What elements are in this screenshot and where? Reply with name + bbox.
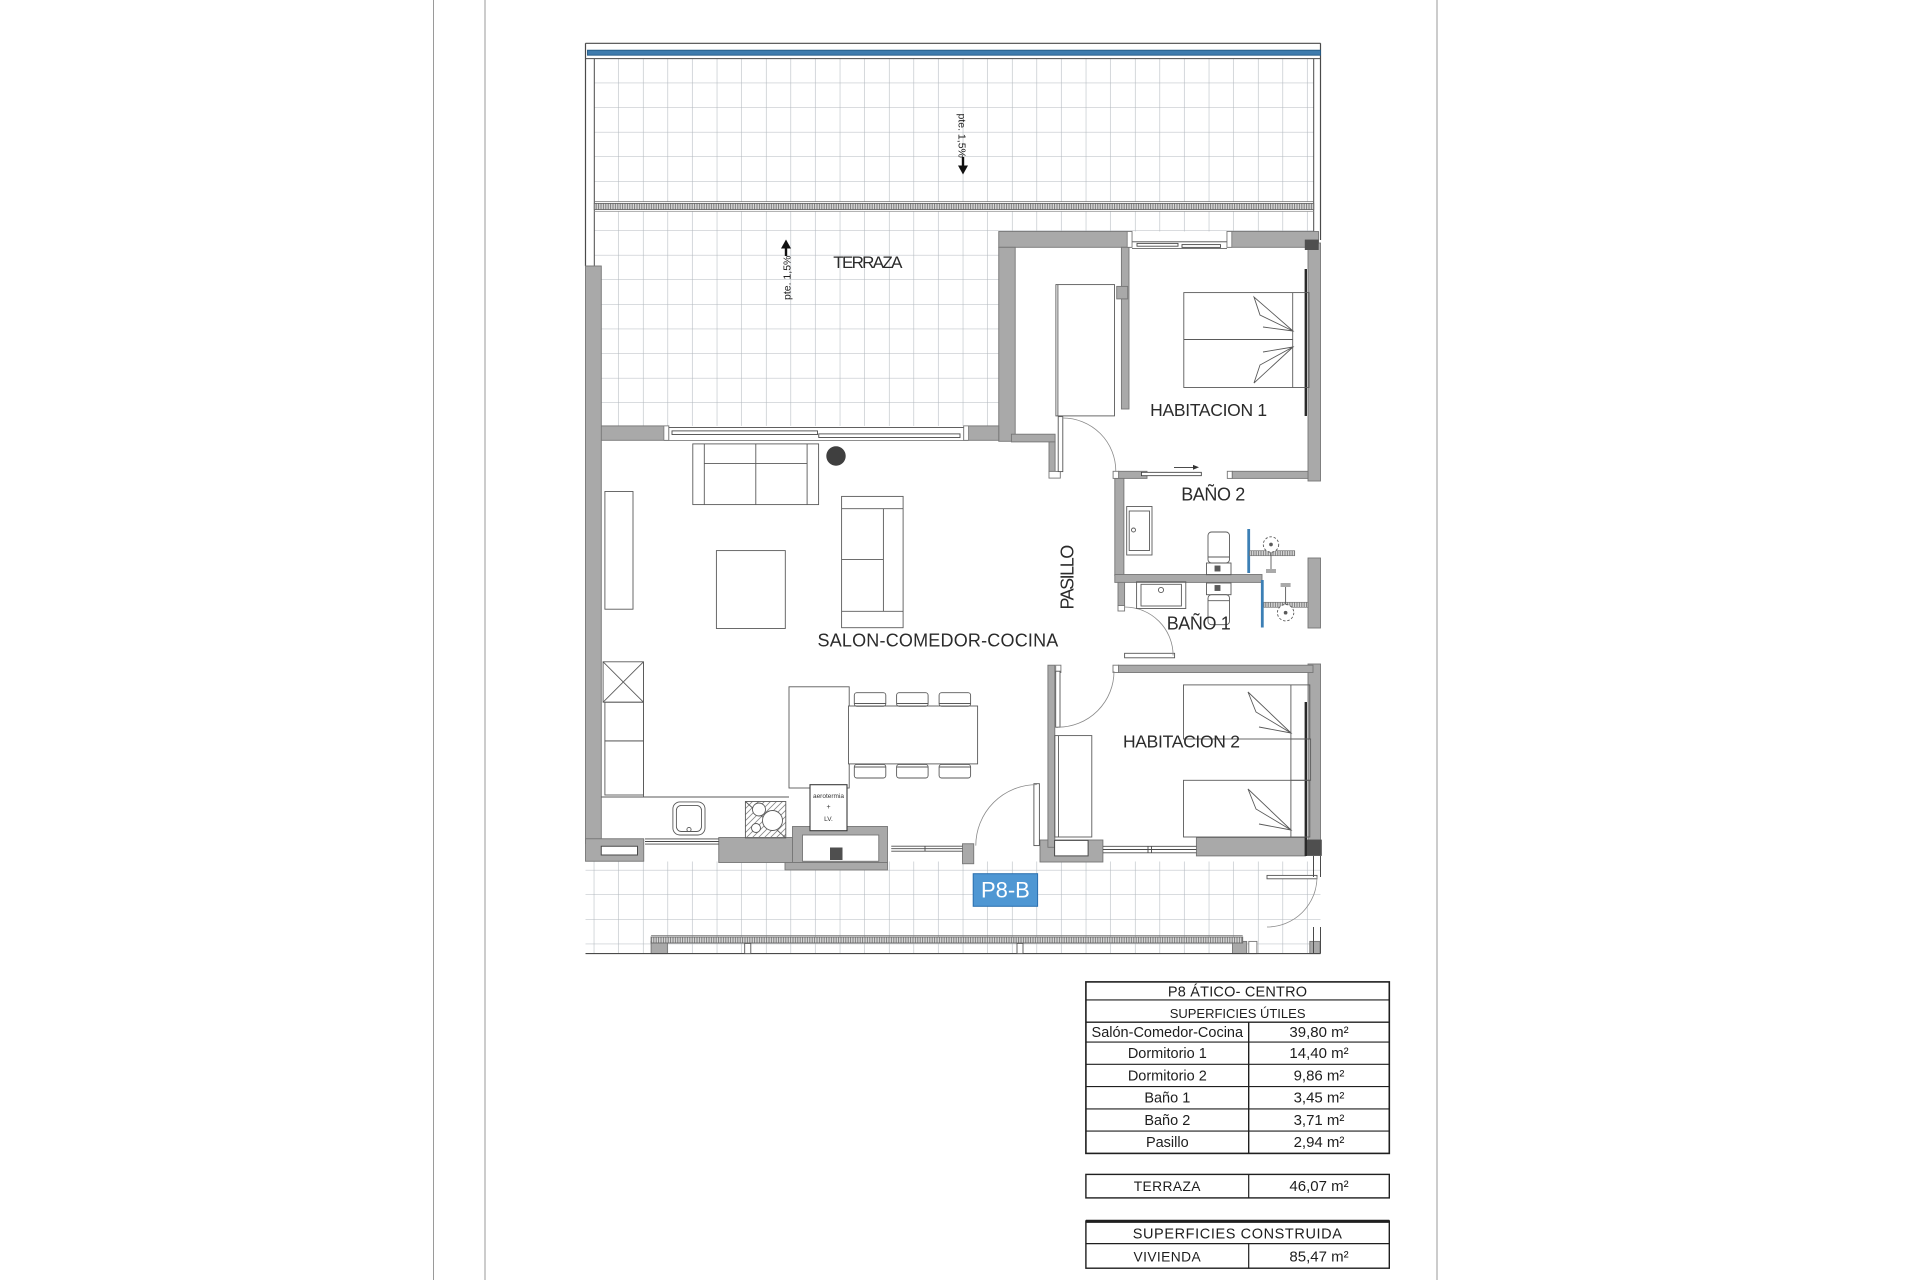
svg-text:BAÑO 2: BAÑO 2 (1181, 484, 1245, 505)
svg-text:Dormitorio 2: Dormitorio 2 (1128, 1068, 1207, 1084)
svg-text:Baño 2: Baño 2 (1144, 1113, 1190, 1129)
svg-text:pte. 1,5%: pte. 1,5% (956, 114, 968, 158)
svg-text:P8-B: P8-B (981, 878, 1030, 903)
svg-text:BAÑO 1: BAÑO 1 (1167, 613, 1231, 634)
svg-text:9,86 m²: 9,86 m² (1294, 1067, 1345, 1084)
svg-text:TERRAZA: TERRAZA (1134, 1179, 1202, 1194)
svg-text:HABITACION 1: HABITACION 1 (1150, 400, 1267, 420)
svg-text:3,71 m²: 3,71 m² (1294, 1112, 1345, 1129)
svg-text:14,40 m²: 14,40 m² (1289, 1045, 1348, 1062)
svg-text:HABITACION 2: HABITACION 2 (1123, 732, 1240, 752)
svg-text:+: + (826, 804, 830, 811)
svg-text:Salón-Comedor-Cocina: Salón-Comedor-Cocina (1092, 1025, 1244, 1041)
svg-text:SALON-COMEDOR-COCINA: SALON-COMEDOR-COCINA (817, 631, 1058, 651)
svg-text:PASILLO: PASILLO (1058, 545, 1078, 610)
svg-text:85,47 m²: 85,47 m² (1289, 1248, 1348, 1265)
svg-text:2,94 m²: 2,94 m² (1294, 1134, 1345, 1151)
svg-text:Dormitorio 1: Dormitorio 1 (1128, 1046, 1207, 1062)
svg-text:46,07 m²: 46,07 m² (1289, 1178, 1348, 1195)
svg-text:VIVIENDA: VIVIENDA (1133, 1249, 1201, 1264)
svg-text:SUPERFICIES CONSTRUIDA: SUPERFICIES CONSTRUIDA (1133, 1227, 1343, 1243)
svg-text:Pasillo: Pasillo (1146, 1135, 1189, 1151)
svg-text:39,80 m²: 39,80 m² (1289, 1024, 1348, 1041)
svg-text:3,45 m²: 3,45 m² (1294, 1090, 1345, 1107)
svg-text:pte. 1,5%: pte. 1,5% (782, 256, 794, 300)
svg-text:aerotermia: aerotermia (813, 793, 844, 800)
svg-text:SUPERFICIES ÚTILES: SUPERFICIES ÚTILES (1170, 1006, 1306, 1021)
svg-text:Baño 1: Baño 1 (1144, 1091, 1190, 1107)
svg-text:P8 ÁTICO- CENTRO: P8 ÁTICO- CENTRO (1168, 983, 1307, 1000)
svg-text:LV.: LV. (824, 816, 833, 823)
svg-text:TERRAZA: TERRAZA (833, 253, 903, 272)
